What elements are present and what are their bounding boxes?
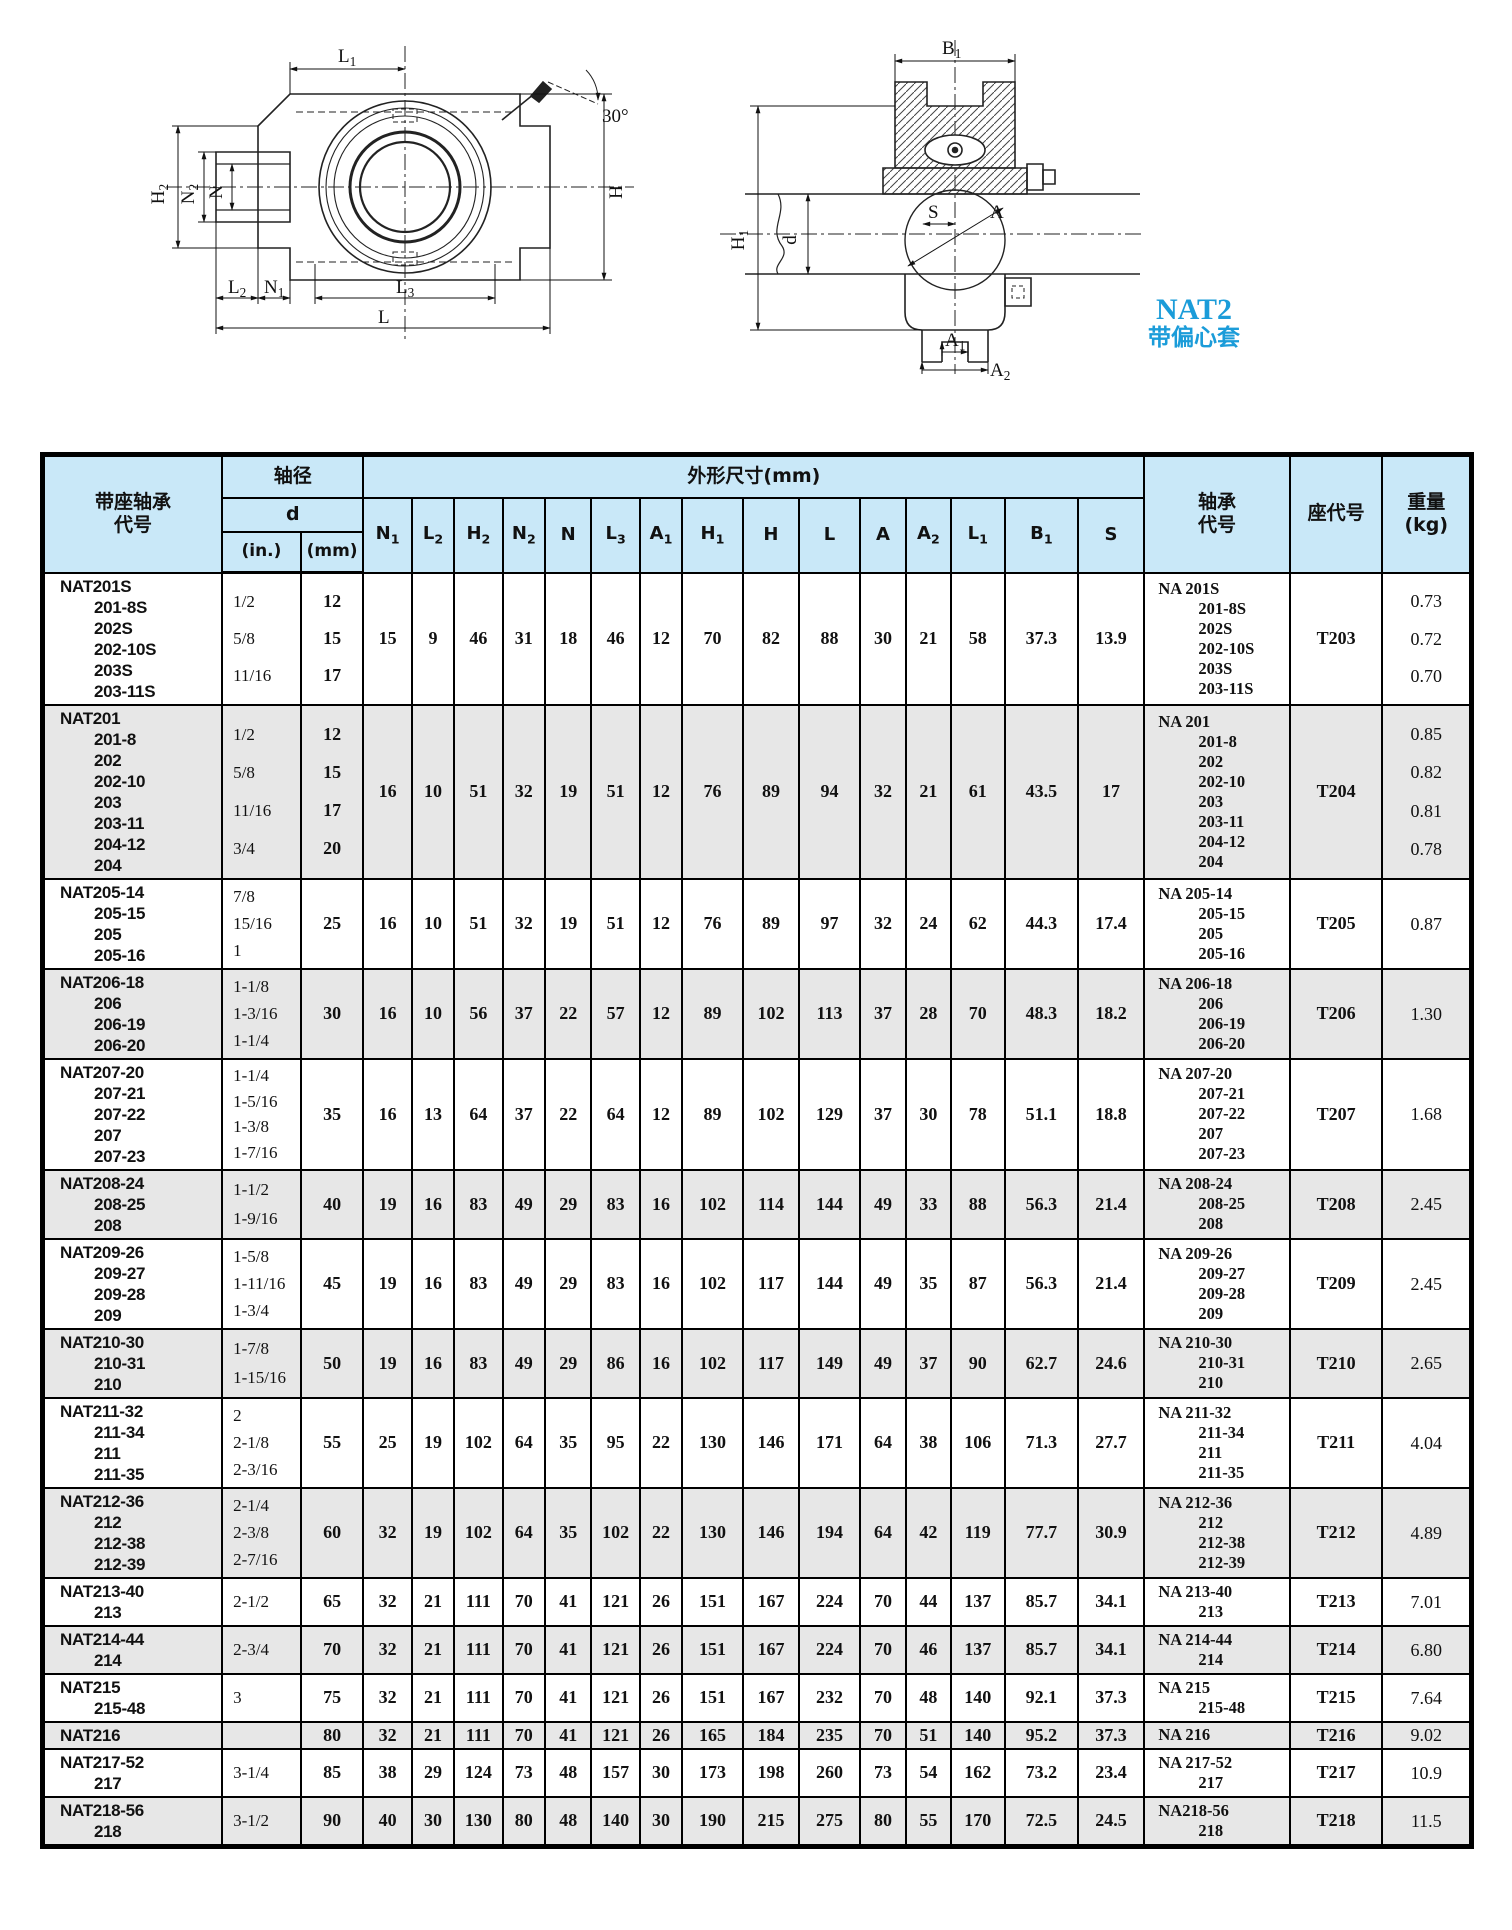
- housing-code-cell: T208: [1290, 1170, 1383, 1239]
- col-header-s: S: [1078, 498, 1145, 573]
- shaft-dia-mm-cell: 12151720: [301, 705, 364, 879]
- bearing-code-line: 210: [1146, 1373, 1287, 1393]
- dim-l-cell: 94: [799, 705, 860, 879]
- shaft-dia-in-cell: 1-7/81-15/16: [222, 1329, 301, 1398]
- shaft-dia-mm-cell: 35: [301, 1059, 364, 1170]
- table-row: NAT214-442142-3/470322111170411212615116…: [43, 1626, 1472, 1674]
- dim-a-cell: 80: [860, 1797, 906, 1847]
- bearing-code-cell: NA 207-20207-21207-22207207-23: [1144, 1059, 1289, 1170]
- dim-l-cell: 149: [799, 1329, 860, 1398]
- col-header-h2: H2: [454, 498, 502, 573]
- housing-code-cell: T218: [1290, 1797, 1383, 1847]
- housing-code-cell: T207: [1290, 1059, 1383, 1170]
- shaft-dia-mm-cell: 60: [301, 1488, 364, 1578]
- housing-code-cell: T212: [1290, 1488, 1383, 1578]
- bearing-code-line: NA 201S: [1146, 579, 1287, 599]
- unit-code-line: NAT216: [46, 1725, 220, 1746]
- unit-code-line: 211: [46, 1443, 220, 1464]
- dim-h1-cell: 76: [682, 705, 743, 879]
- dim-n2-cell: 49: [503, 1329, 545, 1398]
- col-header-a: A: [860, 498, 906, 573]
- dim-n-cell: 29: [545, 1329, 591, 1398]
- dim-l3-cell: 57: [591, 969, 639, 1059]
- table-row: NAT208-24208-252081-1/21-9/1640191683492…: [43, 1170, 1472, 1239]
- bearing-code-line: NA 215: [1146, 1678, 1287, 1698]
- bearing-code-cell: NA 217-52217: [1144, 1749, 1289, 1797]
- bearing-code-line: 211-34: [1146, 1423, 1287, 1443]
- table-row: NAT201201-8202202-10203203-11204-122041/…: [43, 705, 1472, 879]
- table-row: NAT210-30210-312101-7/81-15/165019168349…: [43, 1329, 1472, 1398]
- dim-h-cell: 82: [743, 573, 800, 705]
- weight-cell: 7.01: [1382, 1578, 1471, 1626]
- dim-l-cell: 194: [799, 1488, 860, 1578]
- dim-h1-cell: 70: [682, 573, 743, 705]
- dim-h1-cell: 151: [682, 1578, 743, 1626]
- unit-code-line: 202: [46, 750, 220, 771]
- shaft-dia-in-cell: 2-1/42-3/82-7/16: [222, 1488, 301, 1578]
- dim-a2-cell: 42: [906, 1488, 950, 1578]
- bearing-code-cell: NA 208-24208-25208: [1144, 1170, 1289, 1239]
- dim-l-cell: 113: [799, 969, 860, 1059]
- housing-code-cell: T211: [1290, 1398, 1383, 1488]
- dim-l1-cell: 106: [951, 1398, 1005, 1488]
- dim-label-h1: H1: [728, 230, 751, 250]
- weight-cell: 6.80: [1382, 1626, 1471, 1674]
- shaft-dia-mm-cell: 40: [301, 1170, 364, 1239]
- bearing-code-cell: NA 214-44214: [1144, 1626, 1289, 1674]
- dim-s-cell: 24.5: [1078, 1797, 1145, 1847]
- dim-l-cell: 171: [799, 1398, 860, 1488]
- unit-code-line: 211-34: [46, 1422, 220, 1443]
- dim-n1-cell: 16: [363, 879, 411, 969]
- dim-a1-cell: 22: [640, 1488, 682, 1578]
- shaft-dia-mm-cell: 50: [301, 1329, 364, 1398]
- dim-n-cell: 35: [545, 1488, 591, 1578]
- dim-a2-cell: 54: [906, 1749, 950, 1797]
- dim-label-s: S: [928, 202, 939, 223]
- dim-l3-cell: 86: [591, 1329, 639, 1398]
- dim-l1-cell: 58: [951, 573, 1005, 705]
- dim-h2-cell: 83: [454, 1170, 502, 1239]
- dim-h-cell: 117: [743, 1239, 800, 1329]
- dim-n2-cell: 49: [503, 1170, 545, 1239]
- unit-code-cell: NAT213-40213: [43, 1578, 223, 1626]
- bearing-code-line: NA 217-52: [1146, 1753, 1287, 1773]
- dim-label-d: d: [780, 235, 801, 245]
- housing-code-cell: T209: [1290, 1239, 1383, 1329]
- bearing-code-line: NA218-56: [1146, 1801, 1287, 1821]
- dim-n1-cell: 16: [363, 705, 411, 879]
- dim-label-h: H: [606, 185, 627, 199]
- unit-code-cell: NAT201S201-8S202S202-10S203S203-11S: [43, 573, 223, 705]
- unit-code-line: 206: [46, 993, 220, 1014]
- dim-n1-cell: 25: [363, 1398, 411, 1488]
- dim-l3-cell: 157: [591, 1749, 639, 1797]
- dim-b1-cell: 71.3: [1005, 1398, 1078, 1488]
- housing-code-cell: T216: [1290, 1722, 1383, 1749]
- dim-l1-cell: 61: [951, 705, 1005, 879]
- dim-s-cell: 27.7: [1078, 1398, 1145, 1488]
- shaft-dia-mm-cell: 75: [301, 1674, 364, 1722]
- unit-code-line: 206-20: [46, 1035, 220, 1056]
- bearing-code-line: 218: [1146, 1821, 1287, 1841]
- housing-code-cell: T203: [1290, 573, 1383, 705]
- dim-a2-cell: 55: [906, 1797, 950, 1847]
- dim-l2-cell: 21: [412, 1626, 454, 1674]
- bearing-code-line: 206-19: [1146, 1014, 1287, 1034]
- dim-a-cell: 70: [860, 1722, 906, 1749]
- dim-a-cell: 70: [860, 1674, 906, 1722]
- dim-label-a: A: [990, 202, 1004, 223]
- col-header-n1: N1: [363, 498, 411, 573]
- housing-code-cell: T214: [1290, 1626, 1383, 1674]
- dim-l3-cell: 46: [591, 573, 639, 705]
- table-row: NAT205-14205-15205205-167/815/1612516105…: [43, 879, 1472, 969]
- shaft-dia-in-cell: 1-1/41-5/161-3/81-7/16: [222, 1059, 301, 1170]
- shaft-dia-in-cell: 1-1/81-3/161-1/4: [222, 969, 301, 1059]
- col-header-l3: L3: [591, 498, 639, 573]
- dim-h-cell: 198: [743, 1749, 800, 1797]
- table-row: NAT218-562183-1/290403013080481403019021…: [43, 1797, 1472, 1847]
- dim-h-cell: 89: [743, 879, 800, 969]
- unit-code-cell: NAT211-32211-34211211-35: [43, 1398, 223, 1488]
- unit-code-cell: NAT210-30210-31210: [43, 1329, 223, 1398]
- col-header-bearing-code: 轴承 代号: [1144, 455, 1289, 573]
- dim-a2-cell: 37: [906, 1329, 950, 1398]
- bearing-code-line: 206: [1146, 994, 1287, 1014]
- dim-s-cell: 21.4: [1078, 1239, 1145, 1329]
- dim-l2-cell: 10: [412, 879, 454, 969]
- dim-h1-cell: 130: [682, 1488, 743, 1578]
- dim-h1-cell: 173: [682, 1749, 743, 1797]
- dim-l-cell: 144: [799, 1239, 860, 1329]
- unit-code-cell: NAT201201-8202202-10203203-11204-12204: [43, 705, 223, 879]
- spec-table-body: NAT201S201-8S202S202-10S203S203-11S1/25/…: [43, 573, 1472, 1847]
- dim-a2-cell: 30: [906, 1059, 950, 1170]
- dim-a2-cell: 46: [906, 1626, 950, 1674]
- shaft-dia-in-cell: 1-5/81-11/161-3/4: [222, 1239, 301, 1329]
- housing-code-cell: T215: [1290, 1674, 1383, 1722]
- bearing-code-line: 201-8: [1146, 732, 1287, 752]
- dim-h2-cell: 64: [454, 1059, 502, 1170]
- shaft-dia-mm-cell: 65: [301, 1578, 364, 1626]
- dim-l-cell: 260: [799, 1749, 860, 1797]
- dim-l2-cell: 10: [412, 705, 454, 879]
- dim-s-cell: 18.8: [1078, 1059, 1145, 1170]
- dim-s-cell: 21.4: [1078, 1170, 1145, 1239]
- shaft-dia-mm-cell: 70: [301, 1626, 364, 1674]
- bearing-code-line: NA 205-14: [1146, 884, 1287, 904]
- dim-b1-cell: 56.3: [1005, 1170, 1078, 1239]
- dim-l3-cell: 83: [591, 1239, 639, 1329]
- dim-a-cell: 37: [860, 969, 906, 1059]
- angle-label-30: 30°: [602, 106, 629, 127]
- unit-code-cell: NAT206-18206206-19206-20: [43, 969, 223, 1059]
- table-row: NAT201S201-8S202S202-10S203S203-11S1/25/…: [43, 573, 1472, 705]
- housing-code-cell: T213: [1290, 1578, 1383, 1626]
- dim-h2-cell: 83: [454, 1329, 502, 1398]
- unit-code-line: 210: [46, 1374, 220, 1395]
- dim-a-cell: 70: [860, 1578, 906, 1626]
- shaft-dia-in-cell: 22-1/82-3/16: [222, 1398, 301, 1488]
- dim-a-cell: 30: [860, 573, 906, 705]
- dim-h1-cell: 89: [682, 1059, 743, 1170]
- table-row: NAT211-32211-34211211-3522-1/82-3/165525…: [43, 1398, 1472, 1488]
- dim-s-cell: 18.2: [1078, 969, 1145, 1059]
- unit-code-line: 203S: [46, 660, 220, 681]
- dim-h-cell: 89: [743, 705, 800, 879]
- dim-l2-cell: 29: [412, 1749, 454, 1797]
- dim-n-cell: 41: [545, 1674, 591, 1722]
- unit-code-line: 202S: [46, 618, 220, 639]
- dim-label-n: N: [206, 185, 227, 199]
- unit-code-cell: NAT215215-48: [43, 1674, 223, 1722]
- weight-cell: 2.65: [1382, 1329, 1471, 1398]
- dim-n1-cell: 19: [363, 1170, 411, 1239]
- table-row: NAT212-36212212-38212-392-1/42-3/82-7/16…: [43, 1488, 1472, 1578]
- side-view-drawing: B1 H1 d S A A1 A2: [690, 12, 1170, 382]
- dim-l2-cell: 19: [412, 1398, 454, 1488]
- shaft-dia-in-cell: 1-1/21-9/16: [222, 1170, 301, 1239]
- bearing-code-line: 203: [1146, 792, 1287, 812]
- dim-a1-cell: 12: [640, 1059, 682, 1170]
- unit-code-line: 209: [46, 1305, 220, 1326]
- dim-n2-cell: 70: [503, 1626, 545, 1674]
- dim-l-cell: 275: [799, 1797, 860, 1847]
- dim-n2-cell: 31: [503, 573, 545, 705]
- dim-l-cell: 224: [799, 1578, 860, 1626]
- dim-l3-cell: 121: [591, 1578, 639, 1626]
- shaft-dia-in-cell: 1/25/811/163/4: [222, 705, 301, 879]
- dim-b1-cell: 51.1: [1005, 1059, 1078, 1170]
- shaft-dia-in-cell: 3-1/2: [222, 1797, 301, 1847]
- dim-n1-cell: 19: [363, 1329, 411, 1398]
- dim-l2-cell: 30: [412, 1797, 454, 1847]
- unit-code-line: 202-10: [46, 771, 220, 792]
- bearing-code-line: NA 207-20: [1146, 1064, 1287, 1084]
- dim-l-cell: 232: [799, 1674, 860, 1722]
- dim-a-cell: 64: [860, 1488, 906, 1578]
- dim-b1-cell: 85.7: [1005, 1578, 1078, 1626]
- dim-h-cell: 114: [743, 1170, 800, 1239]
- dim-label-n1: N1: [264, 277, 284, 300]
- shaft-dia-in-cell: 1/25/811/16: [222, 573, 301, 705]
- bearing-code-line: NA 208-24: [1146, 1174, 1287, 1194]
- unit-code-line: 214: [46, 1650, 220, 1671]
- dim-a-cell: 64: [860, 1398, 906, 1488]
- weight-cell: 2.45: [1382, 1170, 1471, 1239]
- dim-b1-cell: 37.3: [1005, 573, 1078, 705]
- weight-cell: 4.04: [1382, 1398, 1471, 1488]
- unit-code-line: 212-39: [46, 1554, 220, 1575]
- dim-a-cell: 49: [860, 1329, 906, 1398]
- dim-h2-cell: 111: [454, 1578, 502, 1626]
- dim-n1-cell: 19: [363, 1239, 411, 1329]
- dim-n2-cell: 32: [503, 705, 545, 879]
- unit-code-line: 205-16: [46, 945, 220, 966]
- dim-a2-cell: 44: [906, 1578, 950, 1626]
- dim-l1-cell: 162: [951, 1749, 1005, 1797]
- bearing-code-cell: NA 211-32211-34211211-35: [1144, 1398, 1289, 1488]
- dim-n1-cell: 16: [363, 969, 411, 1059]
- unit-code-line: NAT201: [46, 708, 220, 729]
- bearing-code-line: 202-10: [1146, 772, 1287, 792]
- shaft-dia-in-cell: 3-1/4: [222, 1749, 301, 1797]
- unit-code-line: 215-48: [46, 1698, 220, 1719]
- col-header-mm: (mm): [301, 532, 364, 573]
- col-header-d: d: [222, 498, 363, 532]
- bearing-code-line: NA 201: [1146, 712, 1287, 732]
- dim-a1-cell: 12: [640, 969, 682, 1059]
- series-desc: 带偏心套: [1148, 326, 1240, 350]
- dim-a-cell: 32: [860, 879, 906, 969]
- dim-l1-cell: 62: [951, 879, 1005, 969]
- dim-l3-cell: 51: [591, 705, 639, 879]
- bearing-code-line: 202: [1146, 752, 1287, 772]
- bearing-code-line: 205-16: [1146, 944, 1287, 964]
- unit-code-cell: NAT212-36212212-38212-39: [43, 1488, 223, 1578]
- dim-label-l2: L2: [228, 277, 246, 300]
- dim-h1-cell: 130: [682, 1398, 743, 1488]
- dim-l3-cell: 83: [591, 1170, 639, 1239]
- shaft-dia-in-cell: 7/815/161: [222, 879, 301, 969]
- unit-code-line: 201-8S: [46, 597, 220, 618]
- bearing-code-line: 208: [1146, 1214, 1287, 1234]
- unit-code-line: 203: [46, 792, 220, 813]
- dim-n2-cell: 73: [503, 1749, 545, 1797]
- dim-a1-cell: 12: [640, 879, 682, 969]
- dim-a1-cell: 12: [640, 705, 682, 879]
- dim-s-cell: 37.3: [1078, 1722, 1145, 1749]
- dim-l-cell: 129: [799, 1059, 860, 1170]
- dim-a2-cell: 48: [906, 1674, 950, 1722]
- bearing-code-line: 202S: [1146, 619, 1287, 639]
- table-row: NAT207-20207-21207-22207207-231-1/41-5/1…: [43, 1059, 1472, 1170]
- bearing-code-line: 203-11S: [1146, 679, 1287, 699]
- dim-h-cell: 167: [743, 1626, 800, 1674]
- unit-code-line: NAT218-56: [46, 1800, 220, 1821]
- dim-l1-cell: 137: [951, 1578, 1005, 1626]
- dim-n1-cell: 40: [363, 1797, 411, 1847]
- dim-n-cell: 19: [545, 705, 591, 879]
- bearing-code-line: 204-12: [1146, 832, 1287, 852]
- dim-l1-cell: 90: [951, 1329, 1005, 1398]
- dim-h1-cell: 190: [682, 1797, 743, 1847]
- dim-label-a2: A2: [990, 360, 1010, 382]
- dim-h2-cell: 111: [454, 1722, 502, 1749]
- dim-l3-cell: 121: [591, 1626, 639, 1674]
- weight-cell: 11.5: [1382, 1797, 1471, 1847]
- unit-code-line: 206-19: [46, 1014, 220, 1035]
- bearing-code-line: 209-27: [1146, 1264, 1287, 1284]
- unit-code-line: 201-8: [46, 729, 220, 750]
- dim-a1-cell: 12: [640, 573, 682, 705]
- dim-h2-cell: 51: [454, 705, 502, 879]
- bearing-code-line: 207: [1146, 1124, 1287, 1144]
- dim-h2-cell: 130: [454, 1797, 502, 1847]
- dim-s-cell: 30.9: [1078, 1488, 1145, 1578]
- dim-l1-cell: 140: [951, 1674, 1005, 1722]
- dim-h1-cell: 151: [682, 1626, 743, 1674]
- unit-code-line: 202-10S: [46, 639, 220, 660]
- table-row: NAT215215-483753221111704112126151167232…: [43, 1674, 1472, 1722]
- dim-a1-cell: 26: [640, 1626, 682, 1674]
- dim-h1-cell: 102: [682, 1329, 743, 1398]
- dim-l2-cell: 21: [412, 1722, 454, 1749]
- dim-label-l: L: [378, 307, 390, 328]
- bearing-code-line: 201-8S: [1146, 599, 1287, 619]
- bearing-code-line: 206-20: [1146, 1034, 1287, 1054]
- dim-l3-cell: 102: [591, 1488, 639, 1578]
- dim-b1-cell: 77.7: [1005, 1488, 1078, 1578]
- table-header: 带座轴承 代号 轴径 外形尺寸(mm) 轴承 代号 座代号 重量 (kg) d …: [43, 455, 1472, 573]
- unit-code-cell: NAT207-20207-21207-22207207-23: [43, 1059, 223, 1170]
- dim-n2-cell: 70: [503, 1722, 545, 1749]
- bearing-code-line: NA 206-18: [1146, 974, 1287, 994]
- unit-code-line: 207-23: [46, 1146, 220, 1167]
- bearing-code-line: 211: [1146, 1443, 1287, 1463]
- col-header-n2: N2: [503, 498, 545, 573]
- bearing-code-line: NA 213-40: [1146, 1582, 1287, 1602]
- dim-l2-cell: 9: [412, 573, 454, 705]
- table-row: NAT213-402132-1/265322111170411212615116…: [43, 1578, 1472, 1626]
- col-header-shaft-dia: 轴径: [222, 455, 363, 499]
- weight-cell: 7.64: [1382, 1674, 1471, 1722]
- col-header-a1: A1: [640, 498, 682, 573]
- dim-s-cell: 37.3: [1078, 1674, 1145, 1722]
- dim-a-cell: 49: [860, 1239, 906, 1329]
- bearing-code-line: 214: [1146, 1650, 1287, 1670]
- dim-l3-cell: 64: [591, 1059, 639, 1170]
- shaft-dia-mm-cell: 25: [301, 879, 364, 969]
- dim-b1-cell: 95.2: [1005, 1722, 1078, 1749]
- dim-h2-cell: 56: [454, 969, 502, 1059]
- dim-l3-cell: 95: [591, 1398, 639, 1488]
- dim-l1-cell: 119: [951, 1488, 1005, 1578]
- dim-n2-cell: 32: [503, 879, 545, 969]
- weight-cell: 9.02: [1382, 1722, 1471, 1749]
- unit-code-line: 209-28: [46, 1284, 220, 1305]
- table-row: NAT206-18206206-19206-201-1/81-3/161-1/4…: [43, 969, 1472, 1059]
- dim-l1-cell: 70: [951, 969, 1005, 1059]
- dim-n-cell: 19: [545, 879, 591, 969]
- unit-code-line: NAT212-36: [46, 1491, 220, 1512]
- bearing-code-line: NA 212-36: [1146, 1493, 1287, 1513]
- table-row: NAT209-26209-27209-282091-5/81-11/161-3/…: [43, 1239, 1472, 1329]
- housing-code-cell: T205: [1290, 879, 1383, 969]
- bearing-code-cell: NA 205-14205-15205205-16: [1144, 879, 1289, 969]
- weight-cell: 2.45: [1382, 1239, 1471, 1329]
- dim-label-l1: L1: [338, 46, 356, 69]
- weight-cell: 1.68: [1382, 1059, 1471, 1170]
- unit-code-line: NAT208-24: [46, 1173, 220, 1194]
- dim-l2-cell: 19: [412, 1488, 454, 1578]
- weight-cell: 0.850.820.810.78: [1382, 705, 1471, 879]
- dim-l1-cell: 88: [951, 1170, 1005, 1239]
- dim-l3-cell: 51: [591, 879, 639, 969]
- dim-h2-cell: 46: [454, 573, 502, 705]
- dim-l2-cell: 10: [412, 969, 454, 1059]
- unit-code-cell: NAT209-26209-27209-28209: [43, 1239, 223, 1329]
- weight-cell: 4.89: [1382, 1488, 1471, 1578]
- col-header-h: H: [743, 498, 800, 573]
- weight-cell: 0.730.720.70: [1382, 573, 1471, 705]
- unit-code-line: 210-31: [46, 1353, 220, 1374]
- dim-b1-cell: 56.3: [1005, 1239, 1078, 1329]
- dim-n-cell: 41: [545, 1722, 591, 1749]
- bearing-code-cell: NA 212-36212212-38212-39: [1144, 1488, 1289, 1578]
- bearing-code-cell: NA 201201-8202202-10203203-11204-12204: [1144, 705, 1289, 879]
